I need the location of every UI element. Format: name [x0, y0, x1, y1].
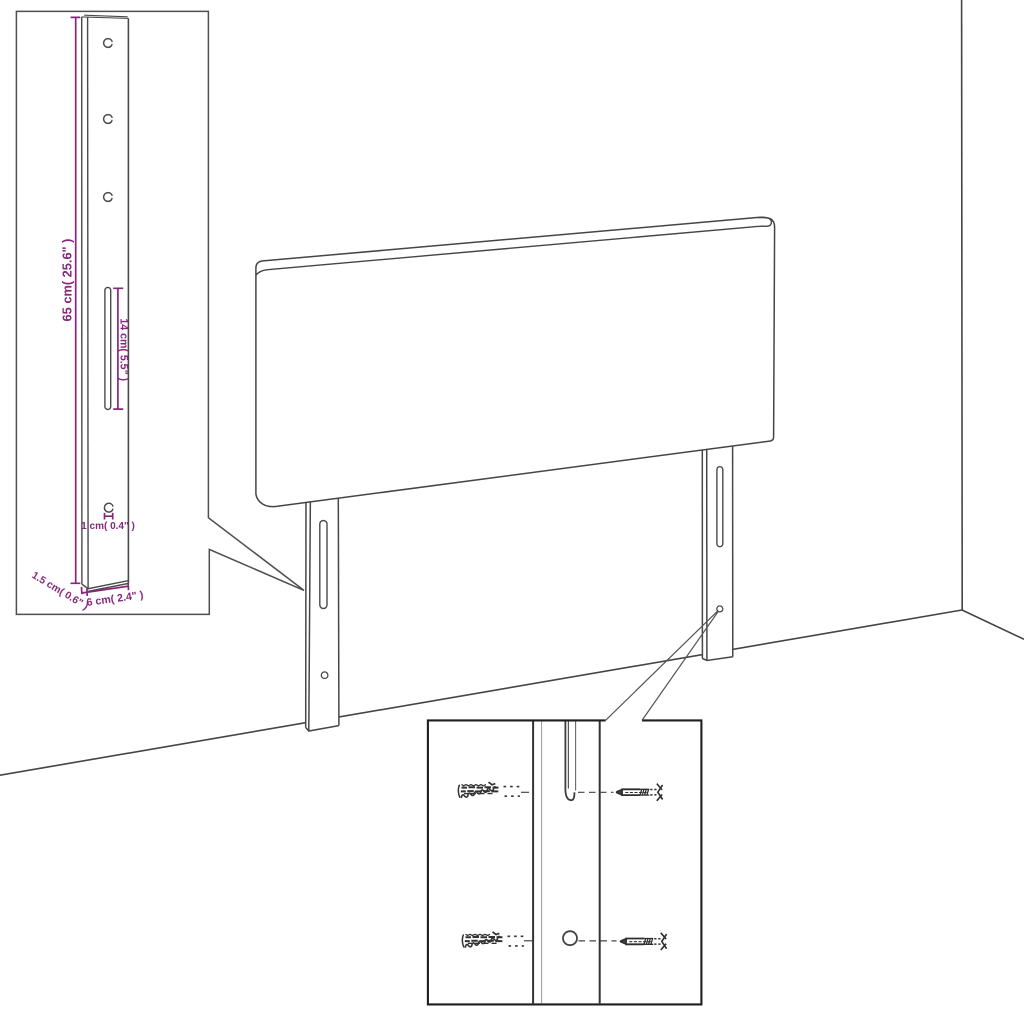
svg-text:14 cm( 5.5" ): 14 cm( 5.5" )	[118, 318, 130, 381]
svg-text:65 cm( 25.6" ): 65 cm( 25.6" )	[60, 239, 75, 322]
svg-text:1 cm( 0.4" ): 1 cm( 0.4" )	[81, 521, 135, 532]
